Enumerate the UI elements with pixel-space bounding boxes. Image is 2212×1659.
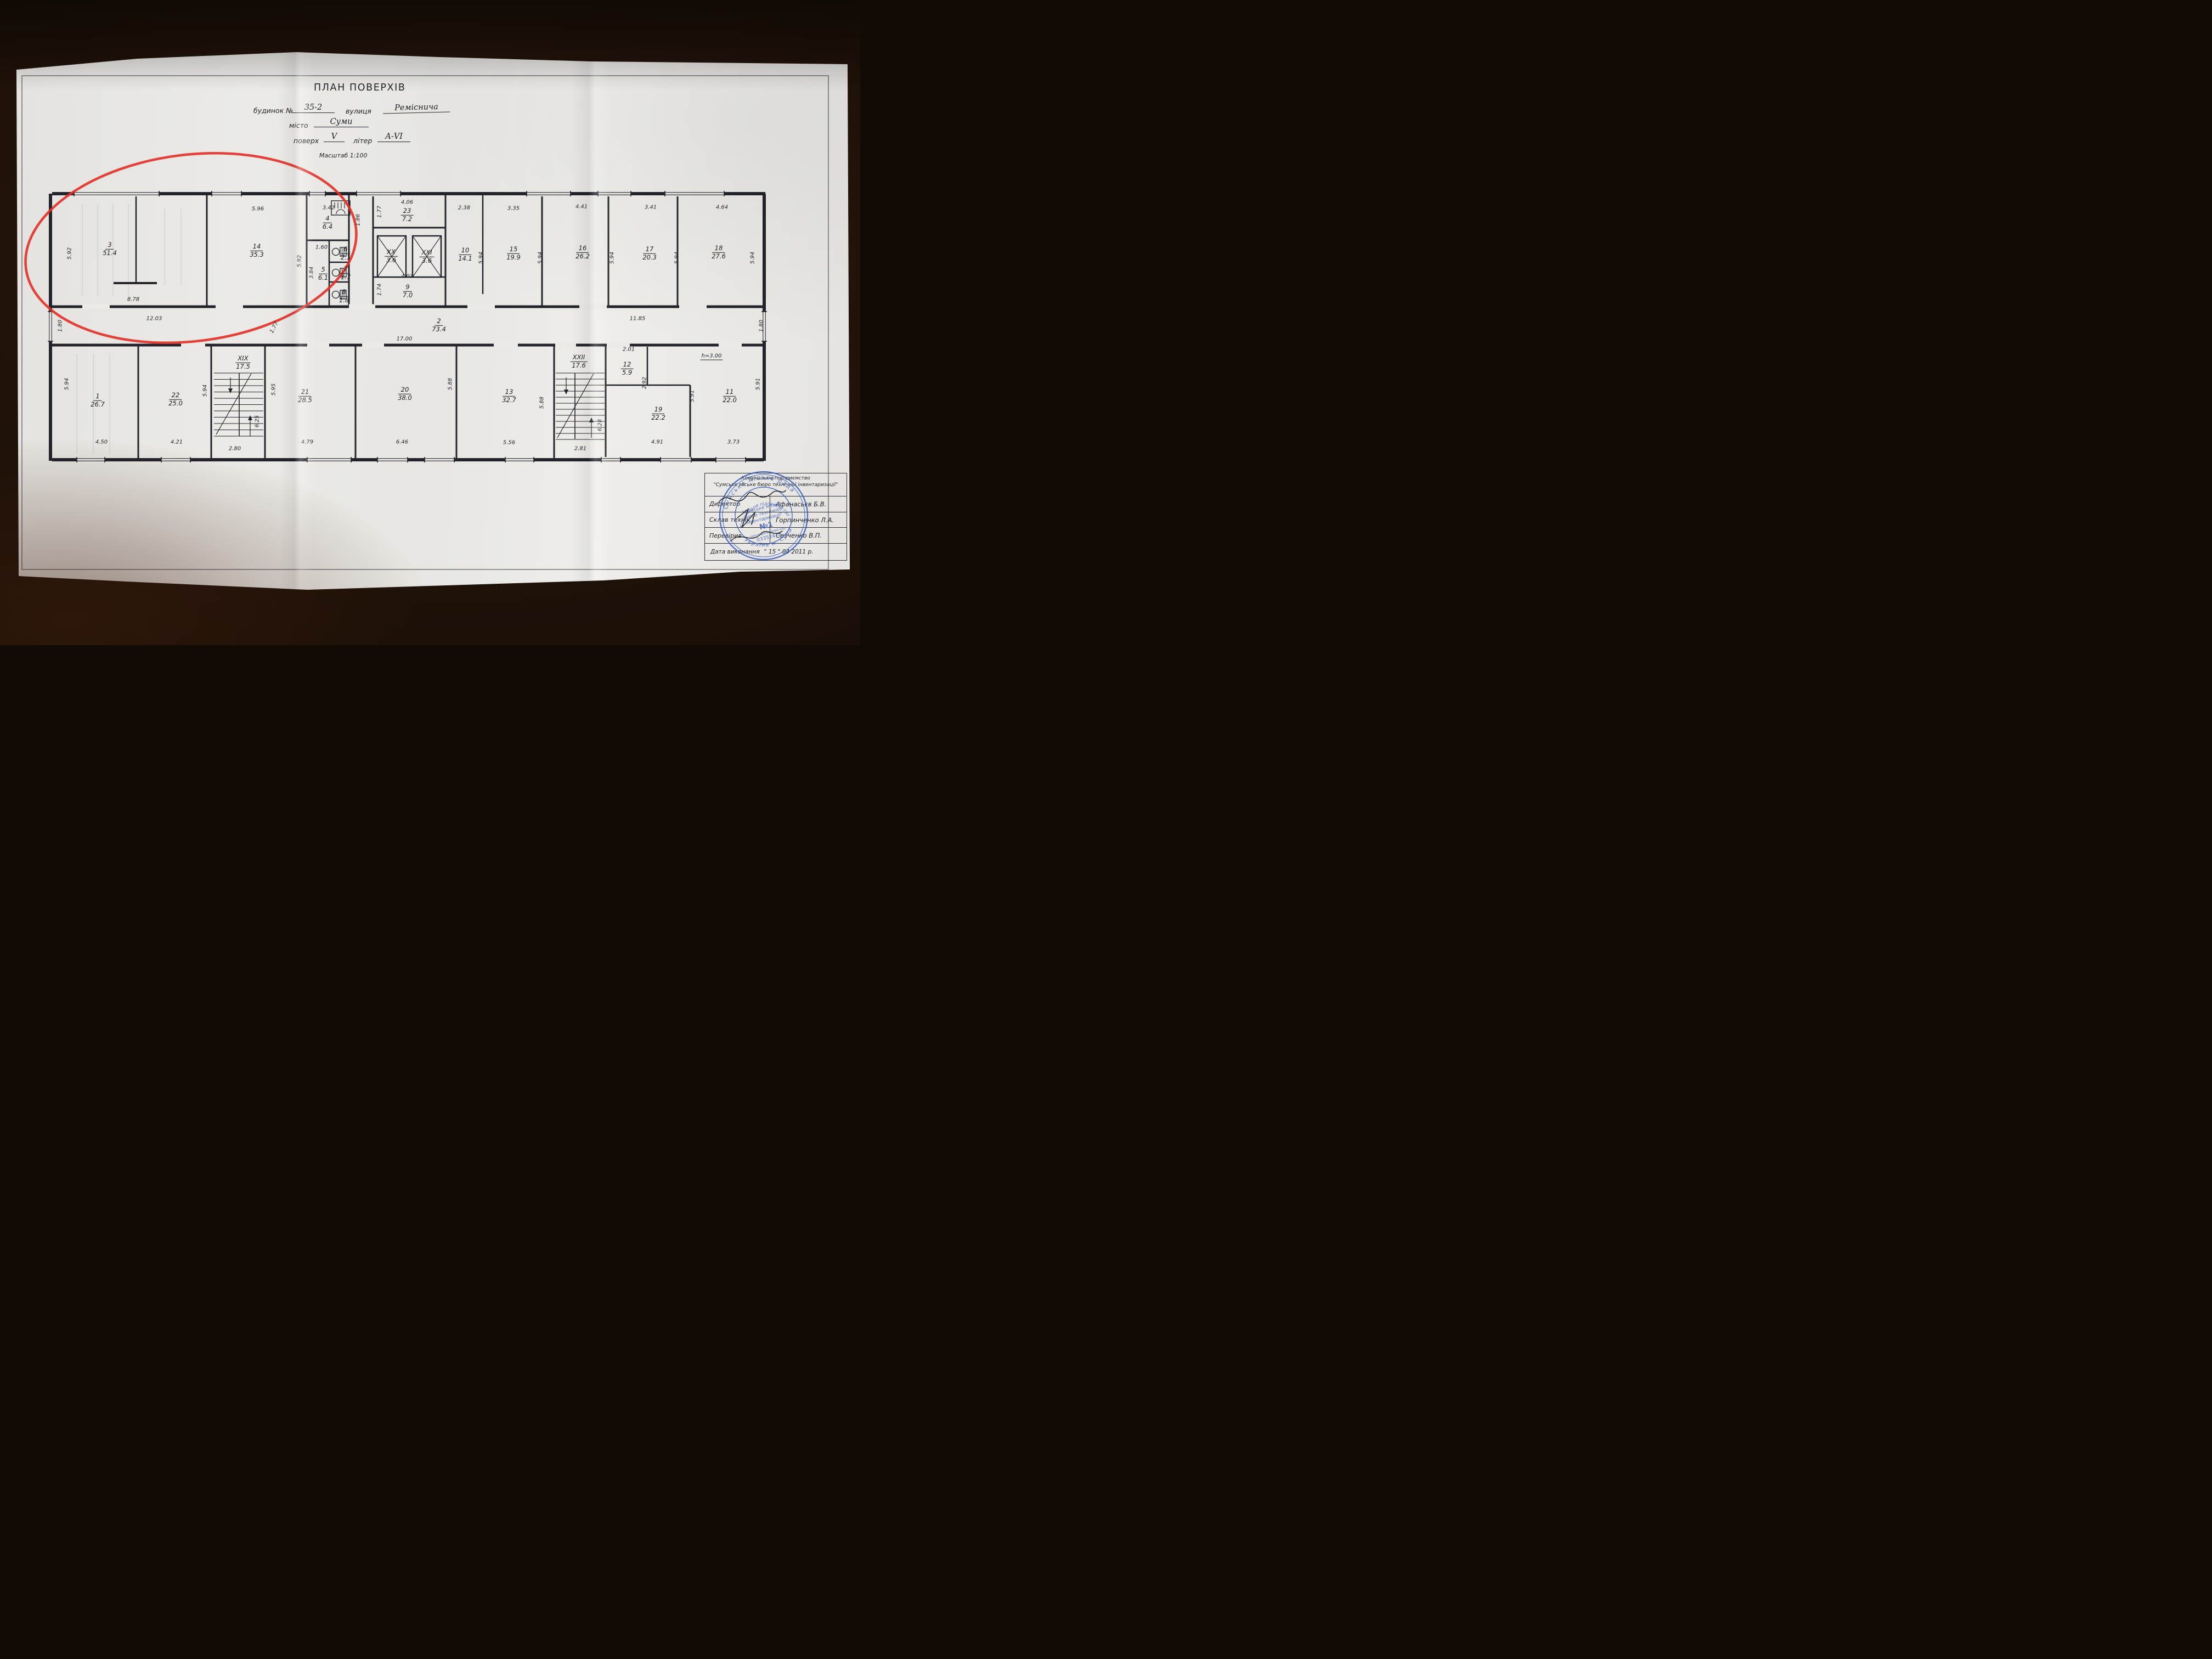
floor-value: V xyxy=(324,132,345,142)
name-technician: Горпинченко Л.А. xyxy=(770,516,847,524)
scale-label: Масштаб 1:100 xyxy=(319,152,367,159)
building-value: 35-2 xyxy=(292,103,335,113)
city-value: Суми xyxy=(314,117,369,127)
role-director: Директор xyxy=(705,496,770,512)
title-block-row-checker: Перевірив Сезченко В.П. xyxy=(705,528,847,544)
floor-label: поверх xyxy=(294,137,319,145)
street-value: Реміснича xyxy=(383,103,450,114)
execution-date-row: Дата виконання " 15 " 04 2011 р. xyxy=(705,544,847,560)
city-label: місто xyxy=(289,121,308,129)
street-label: вулиця xyxy=(346,107,371,115)
letter-label: літер xyxy=(353,137,372,145)
organization-name: Комунальне підприємство "Сумське міське … xyxy=(705,473,847,496)
letter-value: А-VI xyxy=(377,132,410,142)
name-director: Афанасьєв Б.В. xyxy=(770,500,847,508)
paper-sheet: 351.41435.346.462.156.171.781.8237.2XX3.… xyxy=(0,0,860,645)
building-label: будинок № xyxy=(253,106,293,115)
document-title: ПЛАН ПОВЕРХІВ xyxy=(314,82,406,93)
date-value: " 15 " 04 2011 р. xyxy=(764,549,814,555)
role-technician: Склав технік xyxy=(705,512,770,528)
title-block-row-technician: Склав технік Горпинченко Л.А. xyxy=(705,512,847,528)
date-label: Дата виконання xyxy=(710,549,760,555)
name-checker: Сезченко В.П. xyxy=(770,532,847,539)
title-block-row-director: Директор Афанасьєв Б.В. xyxy=(705,496,847,512)
org-line1: Комунальне підприємство xyxy=(705,475,847,482)
role-checker: Перевірив xyxy=(705,528,770,543)
title-block: Комунальне підприємство "Сумське міське … xyxy=(704,473,847,561)
photo-of-floor-plan-document: 351.41435.346.462.156.171.781.8237.2XX3.… xyxy=(0,0,860,645)
org-line2: "Сумське міське бюро технічної інвентари… xyxy=(705,482,847,488)
